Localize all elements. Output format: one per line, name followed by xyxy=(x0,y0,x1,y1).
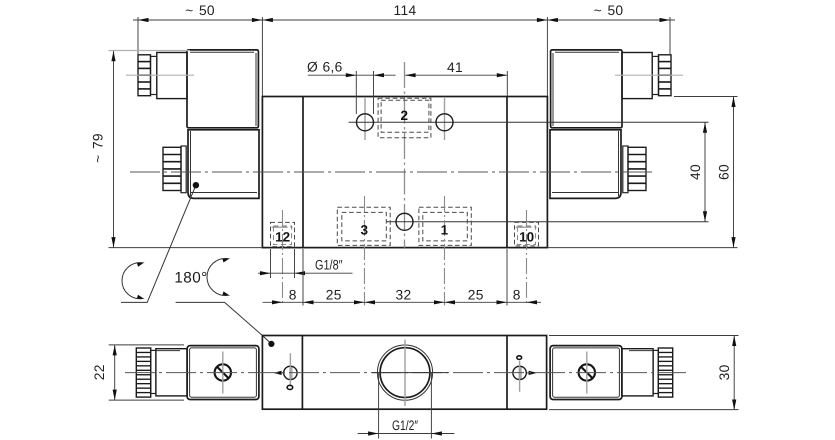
svg-text:~50: ~50 xyxy=(185,3,215,18)
svg-text:180°: 180° xyxy=(174,269,207,286)
svg-text:10: 10 xyxy=(519,229,534,244)
svg-text:25: 25 xyxy=(468,287,484,302)
svg-text:Ø6,6: Ø6,6 xyxy=(307,60,343,75)
svg-text:40: 40 xyxy=(688,164,703,180)
svg-text:G1/2″: G1/2″ xyxy=(392,418,418,433)
svg-text:~50: ~50 xyxy=(594,3,624,18)
svg-text:32: 32 xyxy=(396,287,412,302)
svg-text:8: 8 xyxy=(513,287,521,302)
svg-text:12: 12 xyxy=(275,230,290,245)
svg-text:22: 22 xyxy=(92,364,107,380)
svg-text:114: 114 xyxy=(394,3,417,18)
svg-text:2: 2 xyxy=(401,108,409,123)
svg-text:41: 41 xyxy=(447,60,463,75)
svg-text:1: 1 xyxy=(441,223,449,238)
svg-text:25: 25 xyxy=(326,287,342,302)
svg-text:60: 60 xyxy=(716,164,731,180)
svg-text:~79: ~79 xyxy=(91,133,106,163)
svg-text:30: 30 xyxy=(717,364,732,380)
svg-text:8: 8 xyxy=(289,287,297,302)
svg-text:G1/8″: G1/8″ xyxy=(315,257,343,272)
svg-text:3: 3 xyxy=(361,223,369,238)
